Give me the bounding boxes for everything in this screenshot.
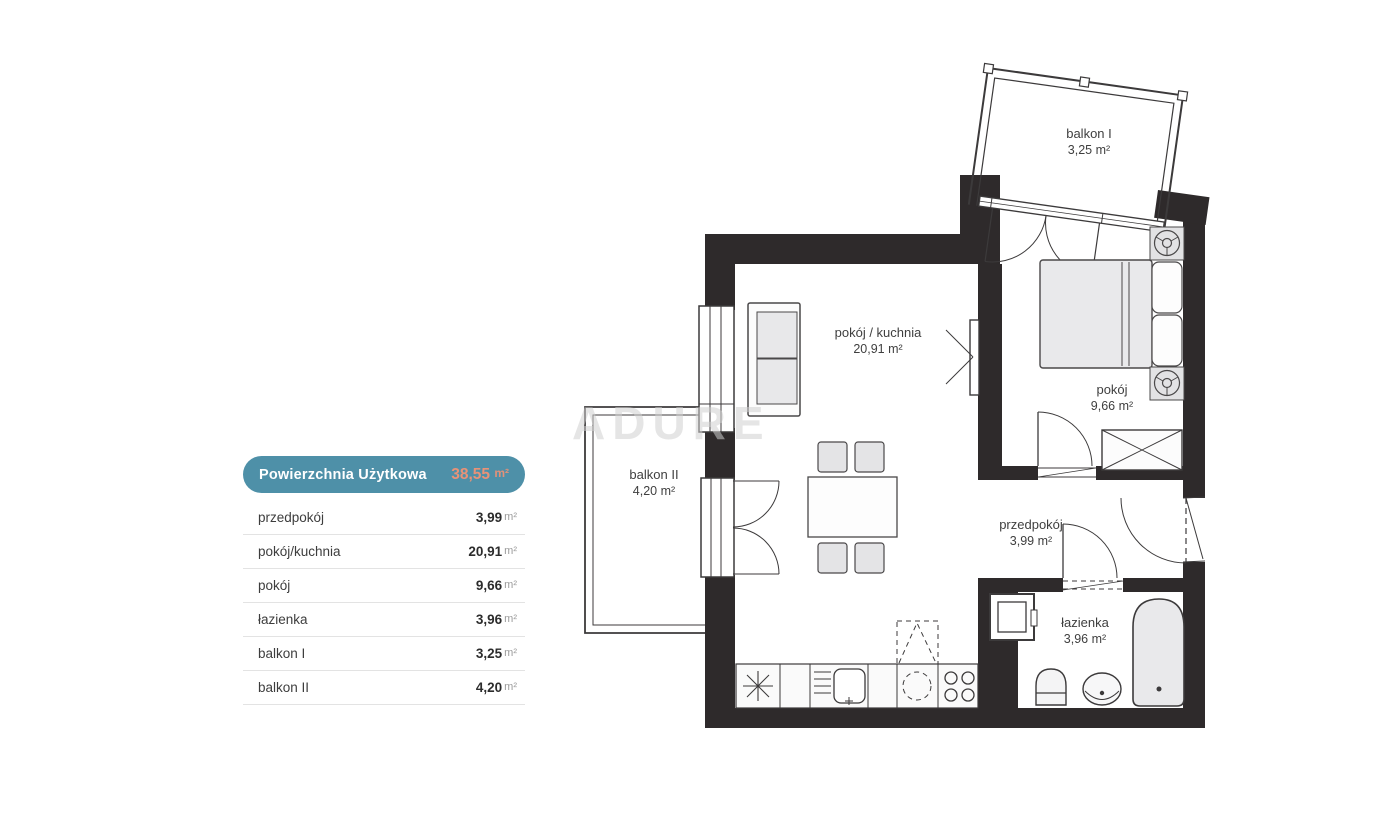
fridge-symbol (743, 671, 773, 701)
bathroom-door (1063, 524, 1123, 590)
room-area: 3,25 m² (1066, 142, 1112, 158)
room-label-pokoj-kuchnia: pokój / kuchnia 20,91 m² (835, 325, 922, 357)
toilet (1036, 669, 1066, 705)
railing-post (983, 63, 993, 73)
railing-post (1079, 77, 1089, 87)
room-name: łazienka (1061, 615, 1109, 631)
kitchen-counter (736, 621, 978, 708)
room-label-przedpokoj: przedpokój 3,99 m² (999, 517, 1063, 549)
floor-plan: ADURE balkon I 3,25 m² pokój / kuchnia 2… (0, 0, 1379, 824)
bedroom-door (1038, 412, 1096, 477)
watermark: ADURE (572, 396, 771, 450)
washing-machine (990, 594, 1037, 640)
room-name: balkon I (1066, 126, 1112, 142)
room-area: 20,91 m² (835, 341, 922, 357)
room-area: 4,20 m² (629, 483, 678, 499)
sliding-door (946, 320, 979, 395)
nightstand-lamp-bottom (1150, 367, 1184, 400)
bed (1040, 260, 1182, 368)
pillow (1152, 315, 1182, 366)
bathroom-sink (1083, 673, 1121, 705)
room-name: przedpokój (999, 517, 1063, 533)
dining-table-set (808, 442, 897, 573)
room-area: 3,96 m² (1061, 631, 1109, 647)
room-name: balkon II (629, 467, 678, 483)
wardrobe (1102, 430, 1182, 470)
railing-post (1177, 91, 1187, 101)
room-label-balkon-1: balkon I 3,25 m² (1066, 126, 1112, 158)
room-name: pokój (1091, 382, 1133, 398)
room-label-lazienka: łazienka 3,96 m² (1061, 615, 1109, 647)
room-area: 9,66 m² (1091, 398, 1133, 414)
room-area: 3,99 m² (999, 533, 1063, 549)
room-label-pokoj: pokój 9,66 m² (1091, 382, 1133, 414)
pillow (1152, 262, 1182, 313)
entrance-door (1121, 497, 1205, 563)
room-name: pokój / kuchnia (835, 325, 922, 341)
room-label-balkon-2: balkon II 4,20 m² (629, 467, 678, 499)
bathtub (1133, 599, 1184, 706)
balcony-2-door (701, 478, 779, 577)
floor-plan-page: Powierzchnia Użytkowa 38,55 m² przedpokó… (0, 0, 1379, 824)
nightstand-lamp-top (1150, 227, 1184, 260)
